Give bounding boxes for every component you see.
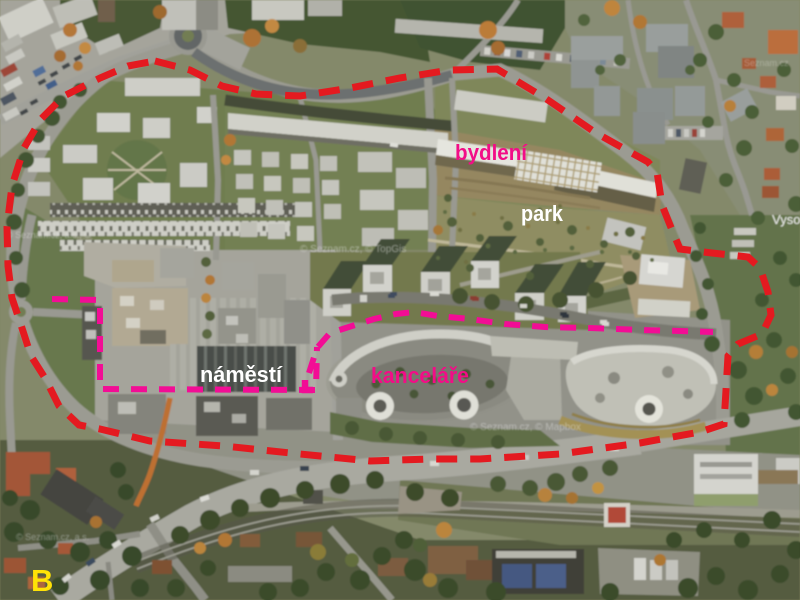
svg-text:park: park [521,201,564,226]
svg-text:kanceláře: kanceláře [371,363,469,388]
svg-text:bydlení: bydlení [455,140,528,165]
svg-text:náměstí: náměstí [200,362,283,387]
svg-text:B: B [31,563,53,598]
